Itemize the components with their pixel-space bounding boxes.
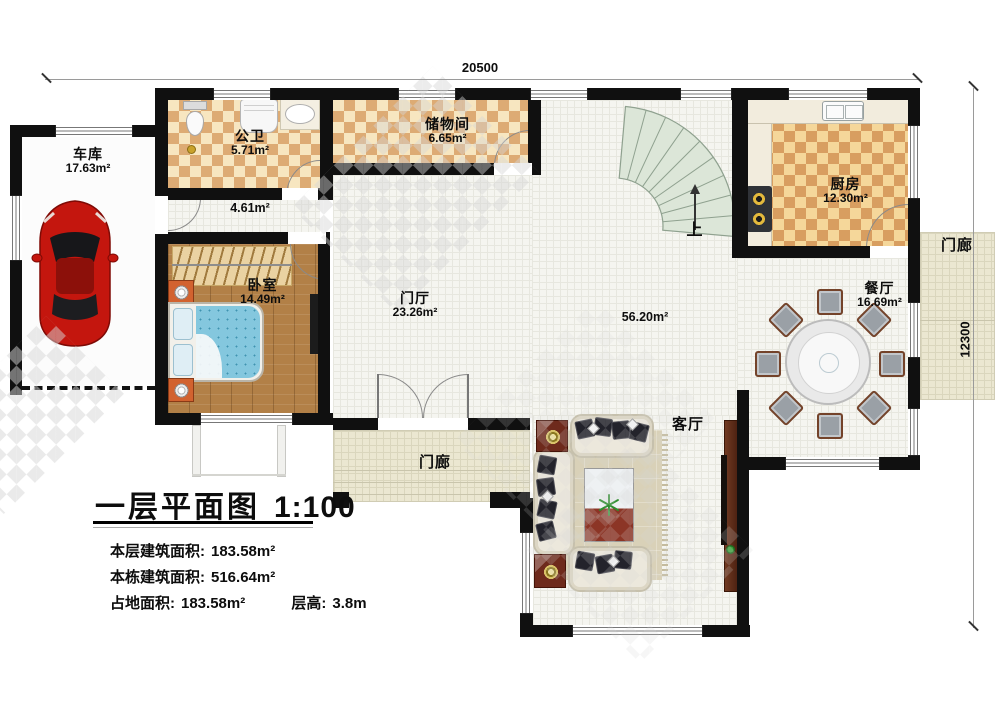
bed-pillow bbox=[173, 308, 193, 340]
stove-icon bbox=[746, 186, 772, 232]
sink-basin bbox=[826, 105, 844, 119]
room-label-garage: 车库 17.63m² bbox=[38, 146, 138, 176]
room-label-storage: 储物间 6.65m² bbox=[400, 116, 495, 146]
floor-drain-icon bbox=[187, 145, 196, 154]
window bbox=[398, 88, 456, 100]
dining-chair bbox=[879, 351, 905, 377]
wardrobe-rail bbox=[172, 264, 292, 266]
shower-line bbox=[244, 110, 274, 111]
toilet-tank bbox=[183, 101, 207, 110]
window bbox=[200, 413, 293, 425]
window bbox=[520, 532, 533, 614]
door-gap bbox=[155, 196, 168, 234]
room-label-bathroom: 公卫 5.71m² bbox=[205, 128, 295, 158]
wall-house-left bbox=[155, 88, 168, 425]
sink-basin bbox=[845, 105, 863, 119]
title-scale: 1:100 bbox=[274, 491, 356, 524]
bed-pillow bbox=[173, 344, 193, 376]
window bbox=[908, 125, 920, 199]
stairs-up-arrowhead bbox=[690, 184, 700, 194]
bay-window-right-post bbox=[277, 425, 286, 477]
floor-plan: 车库 17.63m² 公卫 5.71m² 储物间 6.65m² 4.61m² 卧… bbox=[0, 0, 1000, 706]
page-title: 一层平面图1:100 bbox=[95, 482, 356, 526]
dimension-tick bbox=[912, 73, 923, 84]
stairs-up-label: 上 bbox=[680, 222, 710, 240]
window bbox=[908, 302, 920, 358]
dining-table-center bbox=[819, 353, 839, 373]
window bbox=[572, 625, 703, 637]
plant-icon bbox=[597, 493, 621, 517]
room-label-dining: 餐厅 16.69m² bbox=[832, 280, 927, 310]
nightstand bbox=[168, 280, 194, 304]
wall-bath-storage bbox=[320, 88, 333, 188]
kitchen-sink-icon bbox=[822, 101, 864, 121]
side-table bbox=[536, 420, 568, 452]
dining-chair bbox=[817, 413, 843, 439]
room-label-porch-bottom: 门廊 bbox=[400, 454, 470, 471]
lamp-icon bbox=[174, 383, 189, 398]
bay-window-sill bbox=[192, 474, 286, 476]
room-label-porch-right: 门廊 bbox=[922, 237, 992, 254]
stairs-icon bbox=[585, 78, 745, 240]
room-label-foyer: 门厅 23.26m² bbox=[370, 290, 460, 320]
shower-line bbox=[244, 105, 274, 106]
dimension-tick bbox=[41, 73, 52, 84]
tv-screen bbox=[721, 455, 727, 545]
door-gap bbox=[282, 188, 318, 200]
stat-land-area-and-height: 占地面积:183.58m² 层高:3.8m bbox=[110, 592, 367, 613]
window bbox=[55, 125, 133, 137]
table-ornament bbox=[543, 564, 559, 580]
window bbox=[908, 408, 920, 456]
table-ornament bbox=[545, 429, 561, 445]
bedroom-tv bbox=[310, 294, 318, 354]
title-text: 一层平面图 bbox=[95, 491, 260, 524]
window bbox=[530, 88, 588, 100]
title-underline bbox=[93, 521, 313, 524]
title-underline-thin bbox=[93, 527, 313, 528]
rug-fringe bbox=[662, 434, 668, 576]
entry-door-leaf bbox=[467, 374, 469, 418]
sink-icon bbox=[285, 104, 315, 124]
dimension-line-right bbox=[973, 88, 974, 628]
door-gap bbox=[494, 163, 532, 175]
dimension-line-top bbox=[45, 79, 918, 80]
wall-kitchen-left bbox=[732, 88, 748, 258]
burner-icon bbox=[752, 192, 766, 206]
nightstand bbox=[168, 378, 194, 402]
dining-chair bbox=[755, 351, 781, 377]
sofa-pillow bbox=[575, 551, 596, 572]
room-label-bedroom: 卧室 14.49m² bbox=[215, 277, 310, 307]
window bbox=[680, 88, 732, 100]
room-label-kitchen: 厨房 12.30m² bbox=[798, 176, 893, 206]
window bbox=[10, 195, 22, 261]
window bbox=[785, 457, 880, 470]
wall-storage-right bbox=[528, 88, 541, 175]
door-gap bbox=[288, 232, 326, 244]
stat-floor-area: 本层建筑面积:183.58m² bbox=[110, 540, 275, 561]
sofa-pillow bbox=[537, 455, 558, 476]
car-icon bbox=[30, 198, 120, 350]
stat-building-area: 本栋建筑面积:516.64m² bbox=[110, 566, 275, 587]
window bbox=[788, 88, 868, 100]
burner-icon bbox=[752, 212, 766, 226]
wall-bedroom-right bbox=[318, 244, 330, 425]
side-table bbox=[534, 554, 566, 588]
door-gap bbox=[378, 418, 468, 430]
dimension-top-label: 20500 bbox=[430, 60, 530, 75]
garage-door-dashed bbox=[22, 386, 155, 390]
door-gap bbox=[870, 246, 908, 258]
window bbox=[213, 88, 271, 100]
dimension-right-label: 12300 bbox=[958, 300, 973, 380]
entry-door-leaf bbox=[377, 374, 379, 418]
porch-step-line bbox=[333, 482, 530, 483]
lamp-icon bbox=[174, 285, 189, 300]
wall-living-right bbox=[737, 390, 749, 637]
room-label-living: 客厅 bbox=[650, 416, 726, 433]
porch-pillar bbox=[490, 492, 530, 508]
room-label-corridor: 4.61m² bbox=[200, 201, 300, 215]
cabinet-plant-icon bbox=[726, 545, 735, 554]
dining-table bbox=[785, 319, 871, 405]
bay-window-left-post bbox=[192, 425, 201, 477]
room-label-hall: 56.20m² bbox=[595, 310, 695, 324]
